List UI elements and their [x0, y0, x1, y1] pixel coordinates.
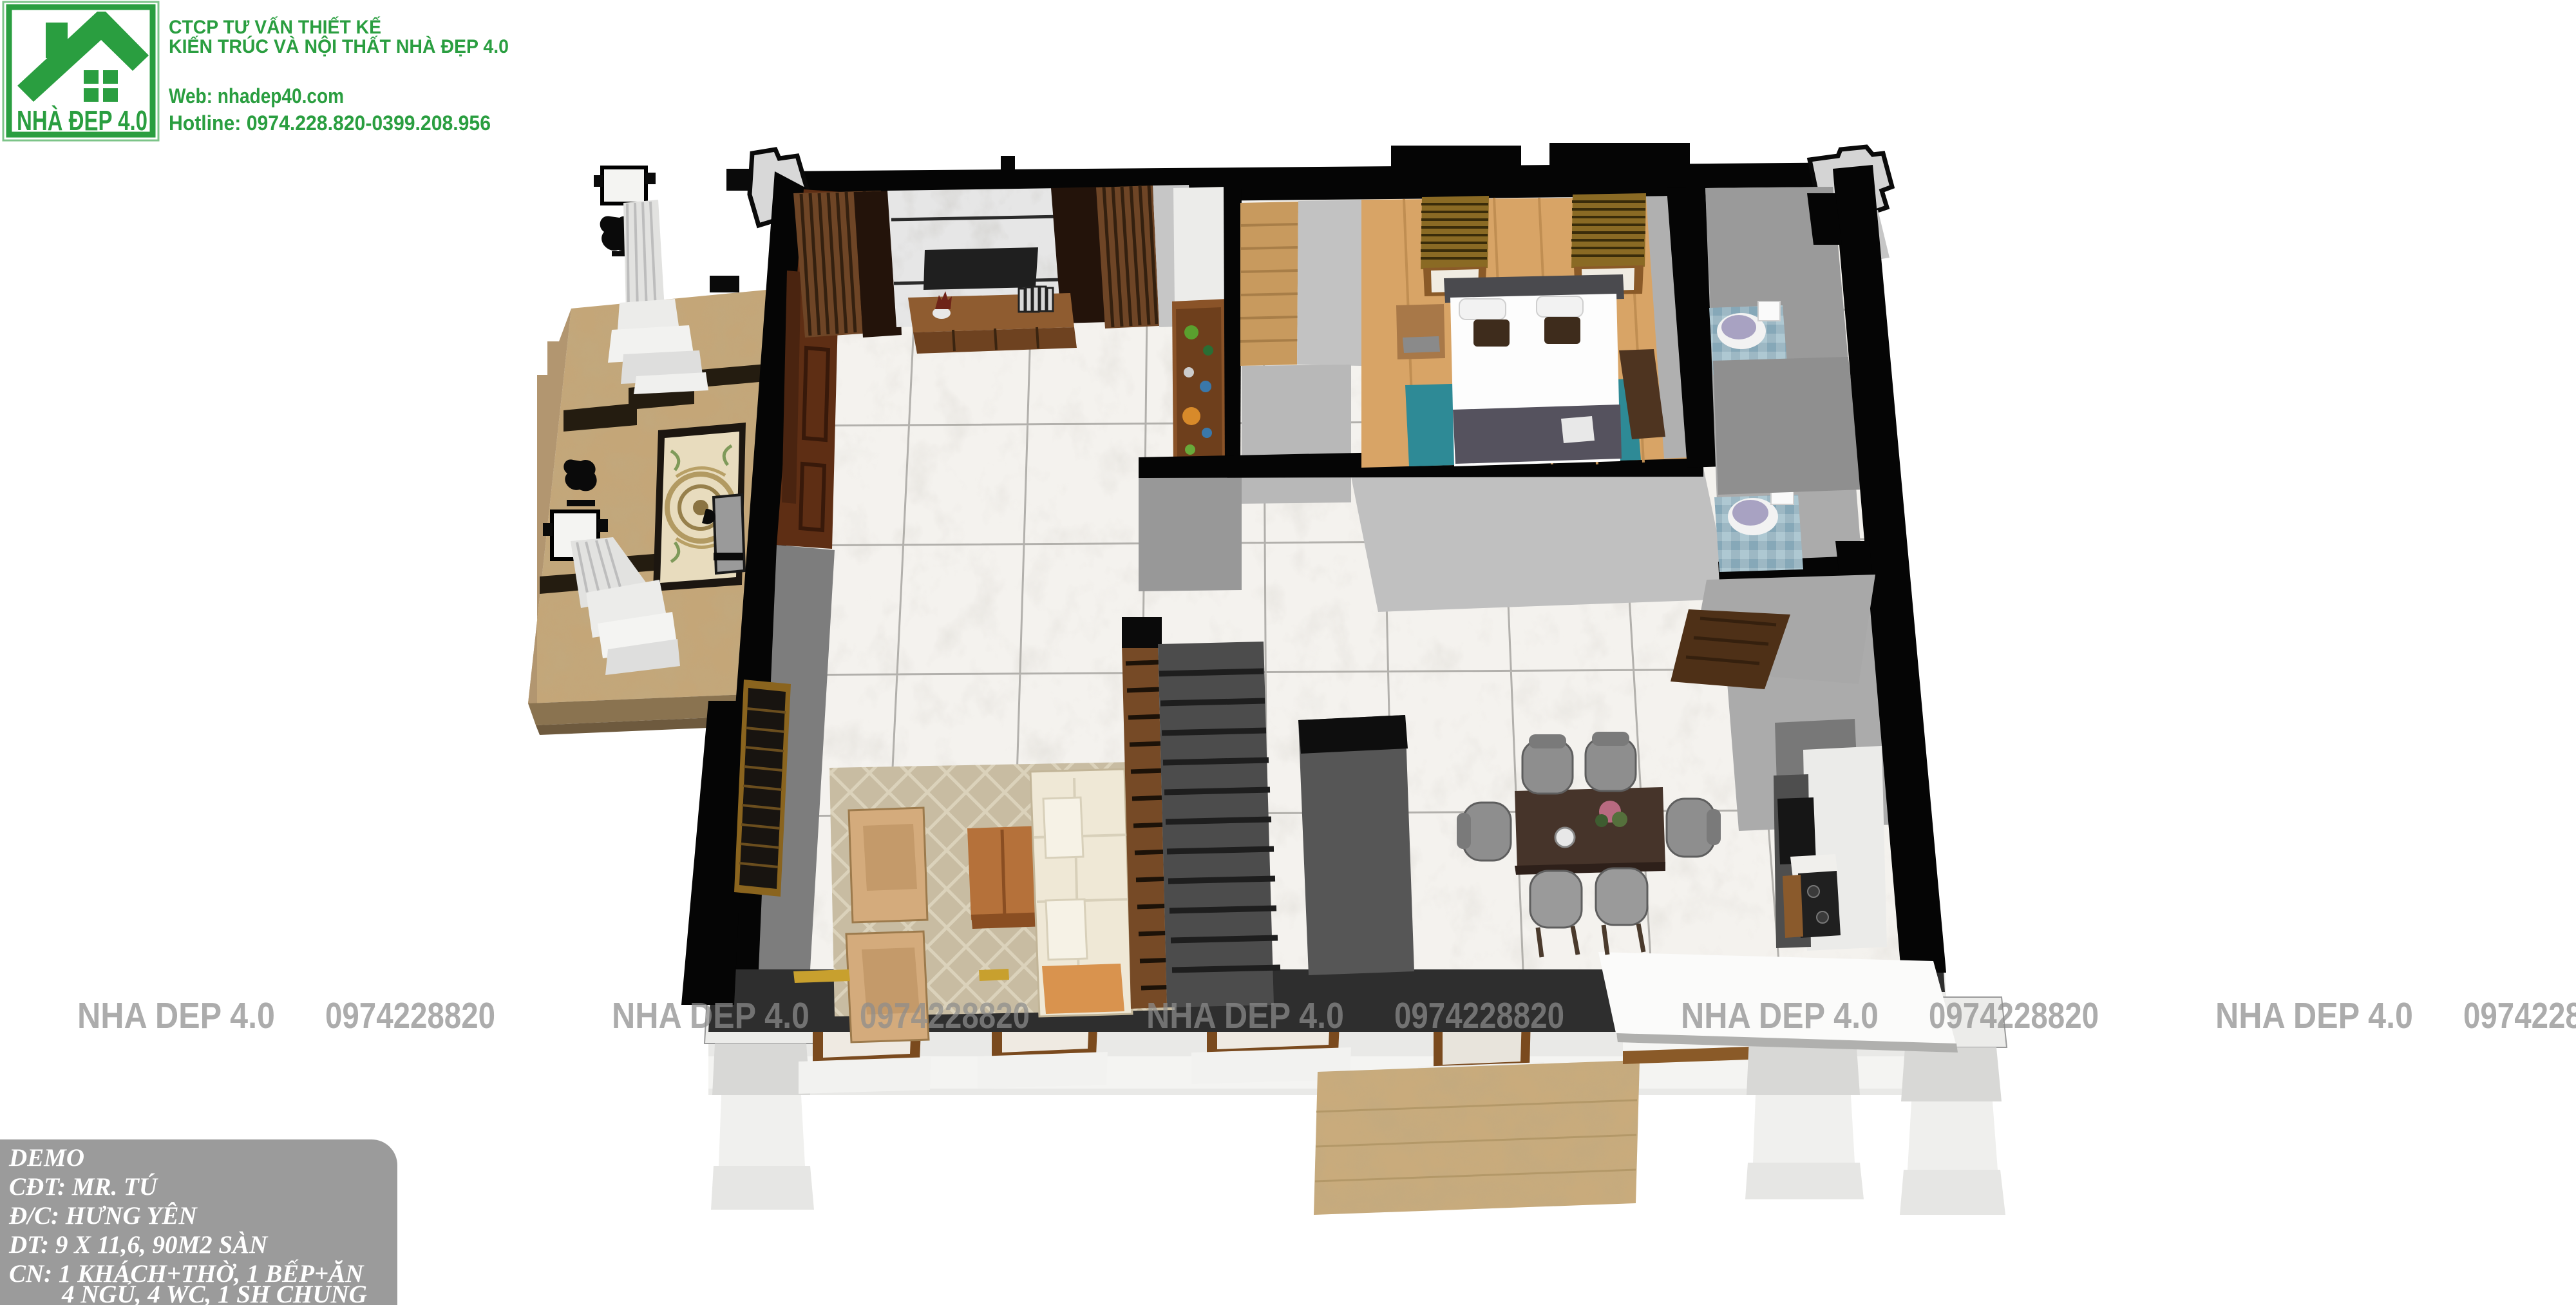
svg-text:NHA DEP 4.0: NHA DEP 4.0: [1681, 995, 1879, 1036]
svg-text:4 NGỦ, 4 WC, 1 SH CHUNG: 4 NGỦ, 4 WC, 1 SH CHUNG: [61, 1279, 367, 1305]
svg-text:DT: 9 X 11,6, 90M2 SÀN: DT: 9 X 11,6, 90M2 SÀN: [8, 1230, 269, 1259]
svg-text:KIẾN TRÚC VÀ NỘI THẤT NHÀ ĐẸP: KIẾN TRÚC VÀ NỘI THẤT NHÀ ĐẸP 4.0: [169, 35, 509, 57]
svg-text:Hotline: 0974.228.820-0399.208: Hotline: 0974.228.820-0399.208.956: [169, 111, 491, 135]
svg-text:0974228820: 0974228820: [325, 995, 495, 1036]
svg-text:0974228820: 0974228820: [2463, 995, 2576, 1036]
svg-text:NHA DEP 4.0: NHA DEP 4.0: [612, 995, 810, 1036]
svg-text:NHA DEP 4.0: NHA DEP 4.0: [1146, 995, 1344, 1036]
svg-text:CTCP TƯ VẤN THIẾT KẾ: CTCP TƯ VẤN THIẾT KẾ: [169, 16, 381, 38]
svg-text:Web: nhadep40.com: Web: nhadep40.com: [169, 84, 344, 108]
svg-text:0974228820: 0974228820: [1394, 995, 1564, 1036]
svg-text:0974228820: 0974228820: [1929, 995, 2099, 1036]
svg-text:NHA DEP 4.0: NHA DEP 4.0: [77, 995, 275, 1036]
svg-text:NHA DEP 4.0: NHA DEP 4.0: [2215, 995, 2413, 1036]
svg-text:0974228820: 0974228820: [860, 995, 1030, 1036]
svg-text:Đ/C: HƯNG YÊN: Đ/C: HƯNG YÊN: [8, 1201, 198, 1230]
svg-text:DEMO: DEMO: [8, 1144, 84, 1172]
svg-text:NHÀ ĐẸP 4.0: NHÀ ĐẸP 4.0: [17, 104, 147, 137]
svg-text:CĐT: MR. TÚ: CĐT: MR. TÚ: [9, 1172, 158, 1201]
